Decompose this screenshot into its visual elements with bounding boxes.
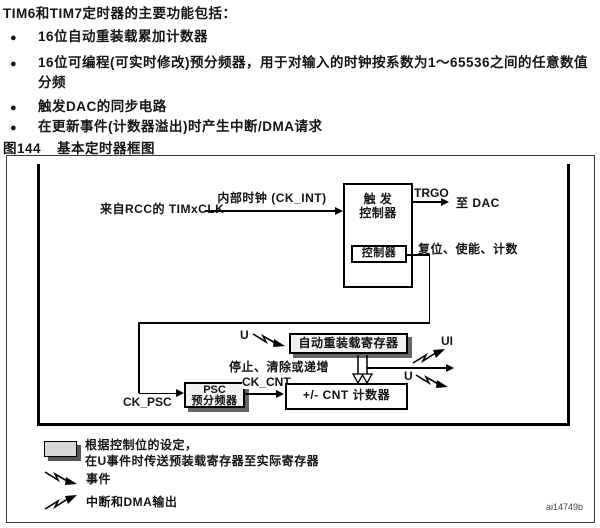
psc-prescaler-box: PSC 预分频器 — [184, 382, 245, 408]
legend-event-label: 事件 — [86, 470, 111, 487]
autoreload-register-box: 自动重装载寄存器 — [289, 333, 408, 354]
trigger-controller-label-line2: 控制器 — [345, 206, 411, 220]
legend-note-line1: 根据控制位的设定， — [85, 436, 198, 453]
ck-cnt-label: CK_CNT — [242, 375, 291, 389]
ck-psc-label: CK_PSC — [123, 395, 172, 409]
bullet-marker: ● — [10, 54, 17, 72]
ck-cnt-arrowhead-icon — [276, 390, 284, 398]
legend-preload-box — [44, 441, 77, 457]
u-event-arrowhead-icon — [446, 364, 454, 372]
u-event-label: U — [240, 328, 249, 342]
control-path-seg2 — [429, 254, 431, 323]
internal-clock-label: 内部时钟 (CK_INT) — [206, 189, 338, 206]
cnt-counter-label: +/- CNT 计数器 — [287, 385, 406, 406]
preload-transfer-arrow-icon — [351, 355, 375, 385]
bullet-dot-icon: ● — [10, 58, 17, 70]
cnt-counter-box: +/- CNT 计数器 — [285, 383, 408, 410]
event-arrow-icon — [252, 332, 288, 350]
reset-enable-count-label: 复位、使能、计数 — [418, 240, 518, 257]
trigger-controller-label-line1: 触 发 — [345, 192, 411, 206]
figure-watermark: ai14749b — [546, 502, 583, 512]
ui-label: UI — [441, 334, 453, 348]
ck-int-line — [205, 210, 338, 212]
psc-box-label-line2: 预分频器 — [186, 396, 243, 407]
control-path-seg3 — [138, 322, 430, 324]
feature-bullet-4: 在更新事件(计数器溢出)时产生中断/DMA请求 — [38, 117, 594, 137]
controller-box-label: 控制器 — [353, 247, 405, 260]
bullet-marker: ● — [10, 118, 17, 136]
interrupt-arrow-icon — [412, 347, 448, 365]
bullet-dot-icon: ● — [10, 32, 17, 44]
autoreload-register-label: 自动重装载寄存器 — [291, 335, 406, 352]
trgo-line — [412, 201, 443, 203]
bullet-dot-icon: ● — [10, 102, 17, 114]
legend-event-arrow-icon — [44, 470, 80, 488]
event-arrow-icon — [415, 373, 451, 391]
control-path-seg4 — [138, 322, 140, 393]
trgo-label: TRGO — [414, 186, 449, 200]
intro-title: TIM6和TIM7定时器的主要功能包括： — [3, 4, 237, 24]
feature-bullet-3: 触发DAC的同步电路 — [38, 97, 594, 117]
feature-bullet-1: 16位自动重装载累加计数器 — [38, 27, 594, 47]
to-dac-label: 至 DAC — [456, 194, 500, 211]
ck-psc-arrowhead-icon — [176, 389, 184, 397]
legend-note-line2: 在U事件时传送预装载寄存器至实际寄存器 — [85, 452, 319, 469]
figure-caption-title: 基本定时器框图 — [57, 137, 155, 157]
ck-int-arrowhead-icon — [335, 207, 343, 215]
figure-caption-number: 图144 — [3, 137, 41, 157]
legend-interrupt-label: 中断和DMA输出 — [86, 493, 177, 510]
trigger-controller-box: 触 发 控制器 — [343, 183, 413, 288]
ck-cnt-line — [245, 393, 278, 395]
bullet-marker: ● — [10, 28, 17, 46]
control-path-seg5 — [139, 393, 177, 395]
bullet-dot-icon: ● — [10, 122, 17, 134]
bullet-marker: ● — [10, 98, 17, 116]
u-label-right: U — [404, 369, 413, 383]
feature-bullet-2: 16位可编程(可实时修改)预分频器，用于对输入的时钟按系数为1～65536之间的… — [38, 53, 594, 93]
stop-clear-upcount-label: 停止、清除或递增 — [229, 358, 329, 375]
legend-interrupt-arrow-icon — [44, 493, 80, 511]
controller-box: 控制器 — [351, 245, 407, 263]
